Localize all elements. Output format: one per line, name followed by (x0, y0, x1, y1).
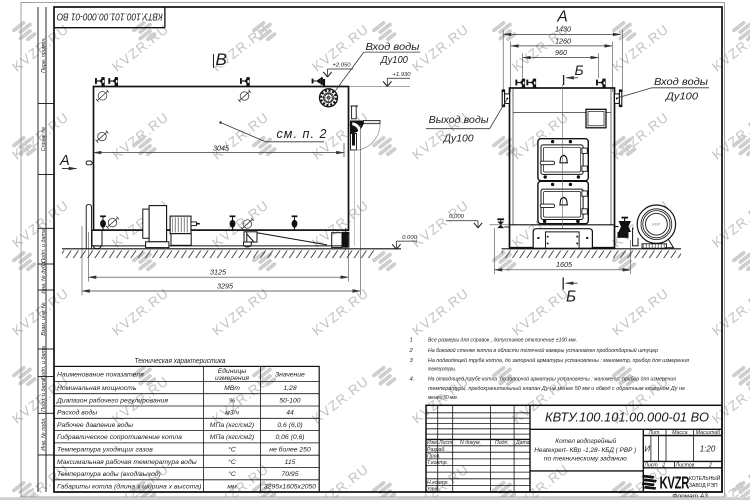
svg-text:А: А (556, 8, 567, 25)
svg-text:Наименование показателя: Наименование показателя (57, 372, 144, 379)
svg-text:1:20: 1:20 (700, 445, 716, 454)
svg-text:КВТУ.100.101.00.000-01 ВО: КВТУ.100.101.00.000-01 ВО (545, 410, 709, 425)
svg-text:Температура уходящих газов: Температура уходящих газов (57, 446, 153, 454)
svg-text:Диапазон рабочего регулировани: Диапазон рабочего регулирования (56, 396, 168, 404)
svg-text:В: В (216, 50, 227, 69)
svg-text:Листов: Листов (675, 462, 695, 468)
svg-text:1605: 1605 (556, 260, 573, 269)
svg-text:1430: 1430 (555, 24, 571, 33)
svg-text:44: 44 (286, 410, 294, 417)
svg-text:ЗАВОД РЭП: ЗАВОД РЭП (689, 483, 718, 489)
svg-text:Дата: Дата (515, 440, 530, 446)
svg-text:Единицы: Единицы (218, 367, 246, 375)
svg-text:Расход воды: Расход воды (57, 409, 97, 417)
svg-text:Вход воды: Вход воды (366, 41, 420, 53)
svg-text:0.000: 0.000 (402, 235, 417, 241)
svg-text:Б: Б (566, 288, 576, 305)
svg-text:3295х1605х2050: 3295х1605х2050 (264, 483, 316, 490)
svg-text:Выход воды: Выход воды (429, 114, 489, 126)
svg-text:Подп. и дата: Подп. и дата (41, 229, 47, 263)
svg-text:2: 2 (409, 348, 414, 354)
svg-text:1260: 1260 (555, 36, 571, 45)
svg-text:не более 250: не более 250 (269, 446, 311, 454)
svg-text:температуры, предохранительный: температуры, предохранительный клапан Ду… (428, 385, 686, 392)
svg-text:МПа (кгс/см2): МПа (кгс/см2) (210, 422, 254, 429)
svg-text:Все размеры для справок , допу: Все размеры для справок , допустимое отк… (428, 337, 577, 343)
svg-text:1,28: 1,28 (283, 385, 296, 392)
svg-text:115: 115 (285, 459, 296, 466)
svg-text:МВт: МВт (224, 385, 240, 392)
svg-text:+2.050: +2.050 (332, 63, 351, 69)
svg-text:Ду100: Ду100 (665, 91, 698, 103)
svg-text:Взам. инв. №: Взам. инв. № (41, 302, 47, 336)
svg-text:Масса: Масса (672, 430, 687, 436)
svg-text:мм: мм (227, 483, 237, 490)
svg-text:Рабочее давление воды: Рабочее давление воды (57, 421, 133, 429)
svg-text:Перв. примен.: Перв. примен. (41, 37, 47, 73)
svg-text:На отводящей трубе котла ,до з: На отводящей трубе котла ,до запорной ар… (428, 375, 677, 382)
svg-text:0,06 (0,6): 0,06 (0,6) (275, 434, 304, 441)
svg-text:1: 1 (663, 462, 666, 468)
svg-text:КВТУ.100.101.00.000-01 ВО: КВТУ.100.101.00.000-01 ВО (57, 10, 163, 22)
svg-text:На боковой стенке котла в обла: На боковой стенке котла в области топочн… (428, 347, 659, 354)
svg-text:А: А (59, 153, 70, 169)
svg-text:°С: °С (228, 458, 236, 466)
svg-text:Н.контр.: Н.контр. (427, 480, 449, 486)
svg-text:Инв. № дубл.: Инв. № дубл. (41, 260, 47, 293)
svg-text:Габариты котла (длина х ширина: Габариты котла (длина х ширина х высота) (57, 482, 201, 490)
svg-text:4.: 4. (410, 376, 415, 382)
svg-text:Лист: Лист (438, 440, 453, 446)
svg-text:Утв.: Утв. (427, 486, 439, 492)
svg-text:960: 960 (555, 48, 567, 57)
svg-text:Heatexpert- КВр -1,28- КБД ( Р: Heatexpert- КВр -1,28- КБД ( РВР ) (534, 447, 636, 454)
svg-text:Масштаб: Масштаб (696, 430, 721, 436)
svg-text:Номинальная мощность: Номинальная мощность (57, 385, 137, 392)
svg-text:менее 50 мм.: менее 50 мм. (428, 395, 458, 401)
svg-text:2: 2 (708, 462, 712, 468)
svg-text:МПа (кгс/см2): МПа (кгс/см2) (210, 434, 254, 441)
svg-text:3295: 3295 (217, 281, 234, 290)
svg-text:Максимальная рабочая температу: Максимальная рабочая температура воды (57, 458, 197, 466)
svg-text:0,6 (6,0): 0,6 (6,0) (277, 422, 302, 429)
svg-text:Т.контр.: Т.контр. (427, 460, 448, 466)
svg-text:И: И (644, 445, 650, 454)
svg-text:На подводящей трубе котла, д: На подводящей трубе котла, до запорной а… (428, 357, 690, 364)
svg-text:N докум.: N докум. (460, 440, 481, 446)
svg-text:Изм.: Изм. (427, 440, 438, 446)
svg-text:50-100: 50-100 (279, 397, 300, 404)
svg-text:0.000: 0.000 (449, 214, 464, 220)
svg-text:Пров.: Пров. (427, 453, 441, 459)
svg-text:Подп. и дата: Подп. и дата (41, 346, 47, 380)
svg-text:Температура воды (вход/выход): Температура воды (вход/выход) (57, 470, 161, 478)
svg-text:м3/ч: м3/ч (225, 410, 239, 417)
svg-text:+1.930: +1.930 (392, 72, 411, 78)
svg-text:Ду100: Ду100 (380, 54, 408, 66)
svg-text:1: 1 (410, 337, 413, 343)
svg-text:Лист: Лист (643, 462, 658, 468)
svg-text:%: % (229, 397, 235, 404)
svg-text:Разраб.: Разраб. (427, 447, 446, 453)
svg-text:°С: °С (228, 446, 236, 454)
svg-text:Ду100: Ду100 (443, 133, 474, 145)
svg-text:Б: Б (575, 62, 584, 78)
svg-text:3045: 3045 (213, 144, 230, 153)
svg-text:Гидравлическое сопротивление к: Гидравлическое сопротивление котла (57, 433, 182, 441)
svg-text:Подп.: Подп. (495, 440, 509, 446)
svg-text:Подп. и дата: Подп. и дата (41, 378, 47, 412)
svg-text:70/95: 70/95 (281, 471, 298, 478)
svg-text:°С: °С (228, 470, 236, 478)
svg-text:Инв. № подл.: Инв. № подл. (41, 417, 47, 450)
svg-text:Котел водогрейный: Котел водогрейный (555, 437, 616, 445)
svg-text:КВЗР: КВЗР (652, 223, 660, 227)
svg-text:Справ. №: Справ. № (41, 127, 47, 152)
svg-text:по техническому заданию: по техническому заданию (544, 455, 627, 463)
svg-text:Вход воды: Вход воды (654, 76, 708, 88)
svg-text:KVZR: KVZR (660, 473, 690, 493)
svg-text:температуры.: температуры. (428, 367, 456, 373)
svg-text:КОТЕЛЬНЫЙ: КОТЕЛЬНЫЙ (689, 474, 721, 482)
svg-text:Значение: Значение (275, 372, 305, 379)
svg-text:3125: 3125 (210, 268, 227, 277)
svg-text:измерения: измерения (215, 375, 249, 382)
svg-text:Лит.: Лит. (648, 430, 661, 436)
svg-text:Техническая характеристика: Техническая характеристика (135, 356, 226, 365)
